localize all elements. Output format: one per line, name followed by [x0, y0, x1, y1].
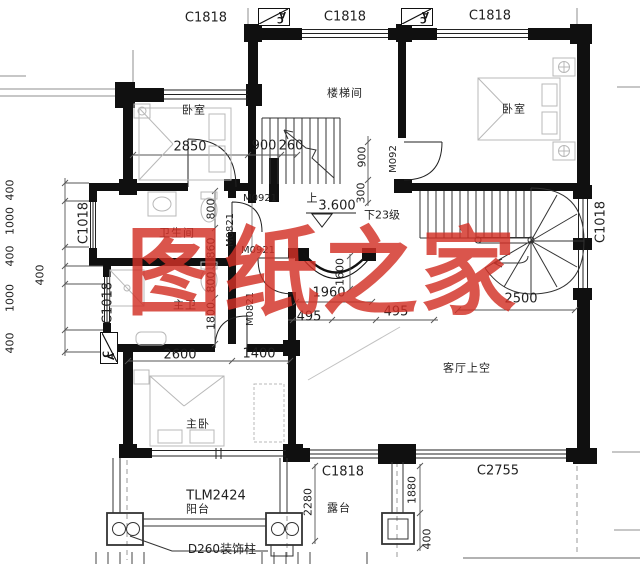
dim-1960: 1960 [312, 287, 345, 300]
dim-400-1: 400 [5, 180, 16, 201]
door-label-m0921-lower: M0921 [241, 246, 275, 256]
window-label-c1818-top-mid: C1818 [324, 11, 366, 24]
room-label-balcony: 阳台 [186, 504, 210, 515]
dim-2500: 2500 [504, 293, 537, 306]
dim-900-door: 900 [357, 147, 368, 168]
dim-800-1: 800 [206, 199, 217, 220]
section-mark-letter-a: A [107, 353, 117, 360]
stair-up-symbol: 上 [307, 193, 318, 204]
floor-plan: C1818 C1818 C1818 C1818 C2755 C1018 C101… [0, 0, 640, 564]
room-label-bathroom: 卫生间 [159, 228, 195, 239]
dim-300: 300 [356, 183, 367, 204]
room-label-bedroom-right: 卧室 [502, 104, 526, 115]
window-label-c1018-right: C1018 [595, 201, 608, 243]
dim-1400: 1400 [242, 348, 275, 361]
window-label-c1818-top-left: C1818 [185, 12, 227, 25]
dim-2600: 2600 [163, 349, 196, 362]
window-label-c1818-top-right: C1818 [469, 10, 511, 23]
stair-down-steps: 下23级 [364, 210, 400, 221]
dim-400-2: 400 [5, 246, 16, 267]
section-mark-letter-a: A [279, 9, 286, 19]
window-label-c1818-bottom: C1818 [322, 466, 364, 479]
section-mark-top-right: C A [401, 8, 433, 26]
dim-1000-2: 1000 [5, 284, 16, 312]
section-mark-left: C A [100, 332, 118, 364]
dim-400-3: 400 [35, 265, 46, 286]
section-mark-top-left: C A [258, 8, 290, 26]
door-label-m0921-upper: M0921 [243, 194, 277, 204]
window-label-c1018-left-lower: C1018 [102, 282, 115, 324]
dim-495-right: 495 [384, 306, 409, 319]
dim-1880: 1880 [407, 476, 418, 504]
door-label-tlm2424: TLM2424 [186, 490, 245, 503]
window-label-c1018-left-upper: C1018 [78, 202, 91, 244]
level-symbol [306, 213, 356, 227]
main-stairs [252, 188, 584, 294]
room-label-terrace: 露台 [327, 503, 351, 514]
room-label-master-bedroom: 主卧 [186, 419, 210, 430]
dim-260: 260 [279, 140, 304, 153]
dim-1600: 1600 [335, 258, 346, 286]
room-label-stair-room: 楼梯间 [327, 88, 363, 99]
dim-2850: 2850 [173, 141, 206, 154]
window-label-c2755: C2755 [477, 465, 519, 478]
decorative-column-note: D260装饰柱 [188, 543, 256, 555]
room-label-master-bathroom: 主卫 [173, 300, 197, 311]
dim-1000-1: 1000 [5, 207, 16, 235]
dim-900-top: 900 [252, 140, 277, 153]
dim-860: 860 [206, 238, 217, 259]
section-mark-letter-a: A [422, 9, 429, 19]
fixtures [110, 58, 575, 446]
balcony-terrace [107, 458, 414, 556]
dim-400-bottom: 400 [422, 529, 433, 550]
door-label-m0821-lower: M0821 [246, 292, 256, 326]
dim-495-left: 495 [297, 311, 322, 324]
level-value: 3.600 [318, 200, 355, 213]
room-label-bedroom-left: 卧室 [182, 105, 206, 116]
room-label-living-void: 客厅上空 [443, 363, 491, 374]
dim-400-4: 400 [5, 333, 16, 354]
floor-plan-linework [0, 0, 640, 564]
door-label-m092: M092 [389, 145, 399, 173]
dim-2280: 2280 [303, 488, 314, 516]
void-diagonal [308, 327, 400, 380]
dim-800-2: 800 [206, 272, 217, 293]
dim-1800: 1800 [206, 302, 217, 330]
door-label-m0821-upper: M0821 [226, 213, 236, 247]
